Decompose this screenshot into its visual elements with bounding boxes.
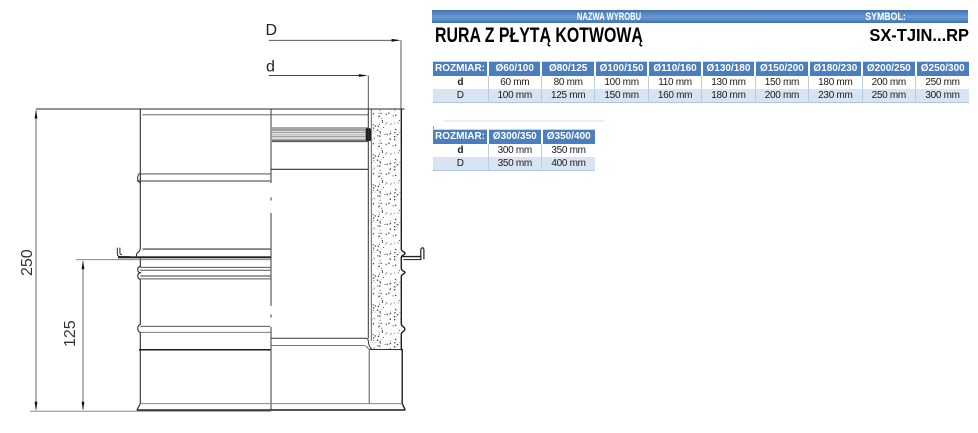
svg-text:d: d [266, 59, 275, 76]
svg-text:125: 125 [62, 320, 79, 347]
svg-text:D: D [266, 22, 278, 39]
svg-text:250: 250 [19, 249, 36, 276]
